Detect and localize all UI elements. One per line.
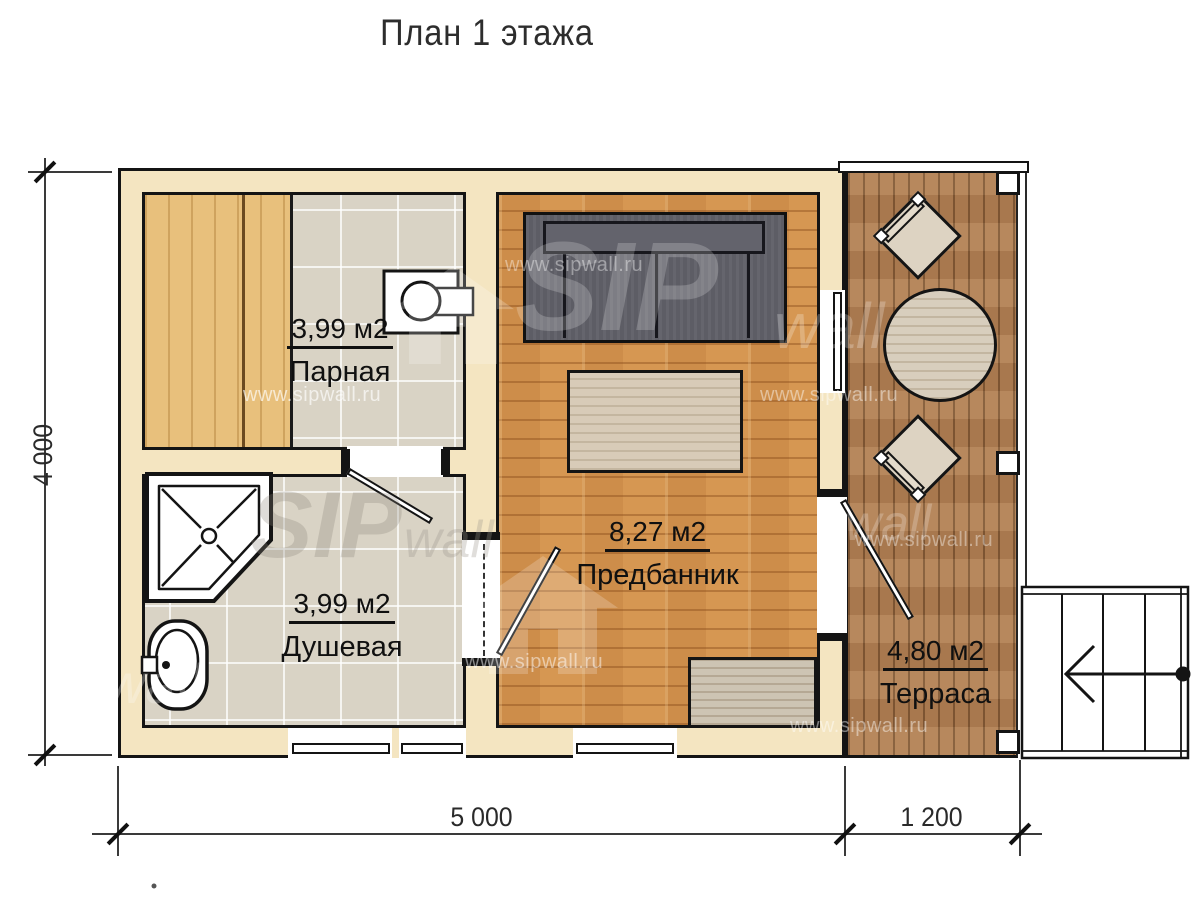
label-terrasa-name: Терраса: [843, 679, 1028, 709]
floor-plan-page: План 1 этажа: [0, 0, 1200, 900]
door-opening-parnaya: [347, 446, 443, 477]
dim-main-width: 5 000: [424, 802, 539, 833]
window-east-frame: [833, 292, 842, 391]
terrace-post: [996, 730, 1020, 754]
sofa: [523, 212, 787, 343]
dim-ext-line: [844, 766, 846, 856]
dim-depth: 4 000: [28, 404, 58, 505]
label-predbannik-area: 8,27 м2: [605, 517, 710, 552]
terrace-round-table: [883, 288, 997, 402]
label-dushevaya-name: Душевая: [250, 632, 434, 662]
sofa-backrest: [543, 221, 765, 254]
door-swing-dashed: [483, 544, 485, 656]
label-dushevaya-area: 3,99 м2: [289, 589, 394, 624]
label-predbannik: 8,27 м2 Предбанник: [545, 517, 770, 591]
door-opening-predbannik: [462, 540, 500, 660]
sofa-seat-divider: [655, 254, 658, 338]
page-title: План 1 этажа: [377, 12, 597, 54]
terrace-railing: [1025, 173, 1027, 587]
sofa-armrest-line: [563, 254, 566, 338]
storage-bench: [688, 657, 817, 728]
terrace-post: [996, 171, 1020, 195]
coffee-table: [567, 370, 743, 473]
label-terrasa-area: 4,80 м2: [883, 636, 988, 671]
door-jamb: [462, 658, 500, 666]
stairs-icon: [1022, 587, 1191, 758]
plot-mark: [152, 884, 157, 889]
dim-ext-line: [1019, 760, 1021, 856]
door-opening-terrace: [817, 497, 847, 633]
label-parnaya: 3,99 м2 Парная: [248, 314, 432, 388]
label-dushevaya: 3,99 м2 Душевая: [250, 589, 434, 663]
door-jamb: [817, 489, 847, 497]
door-jamb: [441, 449, 450, 475]
label-predbannik-name: Предбанник: [545, 560, 770, 590]
window-south-1-frame: [292, 743, 390, 754]
dim-line-bottom: [92, 833, 1042, 835]
label-parnaya-name: Парная: [248, 357, 432, 387]
label-parnaya-area: 3,99 м2: [287, 314, 392, 349]
window-mullion: [392, 728, 399, 758]
dim-ext-line: [117, 766, 119, 856]
window-south-1-frame: [401, 743, 463, 754]
label-terrasa: 4,80 м2 Терраса: [843, 636, 1028, 710]
door-jamb: [462, 532, 500, 540]
bench-divider: [242, 195, 245, 447]
terrace-post: [996, 451, 1020, 475]
sofa-armrest-line: [747, 254, 750, 338]
window-south-2-frame: [576, 743, 674, 754]
dim-terrace-width: 1 200: [874, 802, 989, 833]
